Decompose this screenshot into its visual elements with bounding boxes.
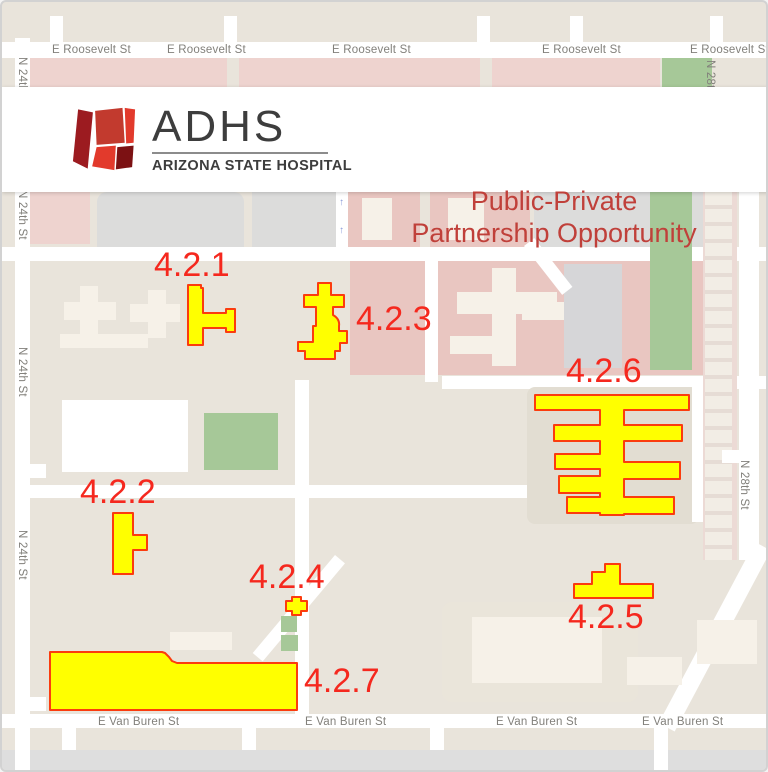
highlight-4-2-7 [50,652,297,710]
flyer-title: Public-Private Partnership Opportunity [354,185,754,249]
parcel-label-424: 4.2.4 [249,560,325,594]
header-banner: ADHS ARIZONA STATE HOSPITAL Public-Priva… [2,87,768,192]
highlight-4-2-3 [298,283,347,359]
adhs-logo-icon [66,102,142,176]
highlight-4-2-2 [113,513,147,574]
logo-divider [152,152,328,154]
parcel-label-425: 4.2.5 [568,600,644,634]
highlight-4-2-4 [286,597,307,615]
highlight-4-2-1 [188,285,235,345]
adhs-abbr: ADHS [152,105,352,149]
parcel-label-426: 4.2.6 [566,354,642,388]
adhs-name: ARIZONA STATE HOSPITAL [152,158,352,174]
flyer-title-line1: Public-Private [354,185,754,217]
parcel-label-422: 4.2.2 [80,475,156,509]
adhs-logo: ADHS ARIZONA STATE HOSPITAL [66,97,352,181]
highlight-4-2-6 [535,395,689,515]
highlight-4-2-5 [574,564,653,598]
map-flyer: ↑ ↑ E Roosevelt St [0,0,768,772]
flyer-title-line2: Partnership Opportunity [354,217,754,249]
parcel-label-427: 4.2.7 [304,664,380,698]
adhs-logo-text: ADHS ARIZONA STATE HOSPITAL [152,105,352,174]
parcel-label-423: 4.2.3 [356,302,432,336]
parcel-label-421: 4.2.1 [154,248,230,282]
